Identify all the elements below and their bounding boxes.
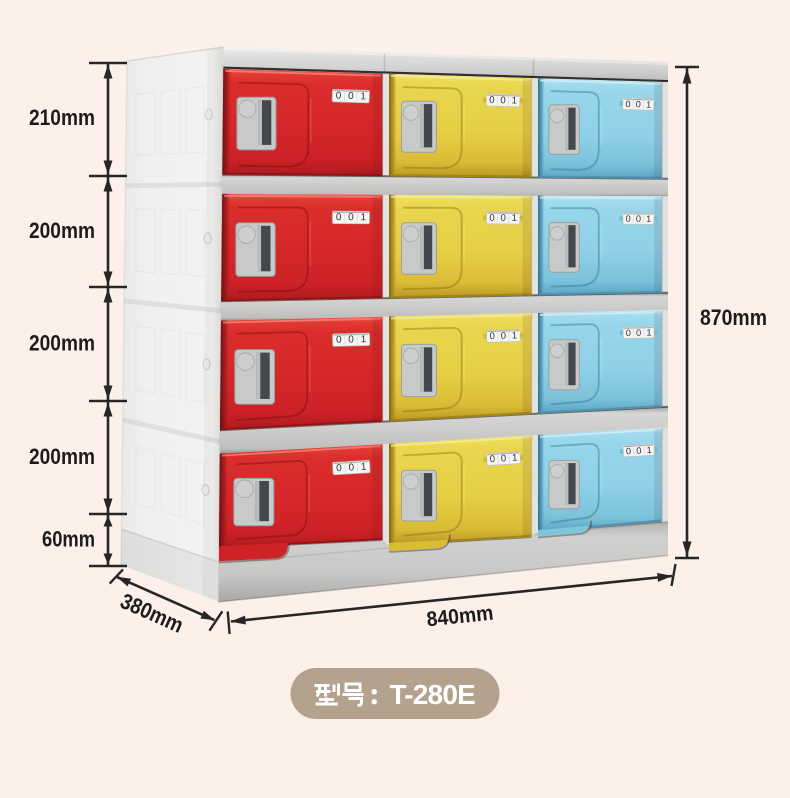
svg-text:0: 0 <box>626 214 631 224</box>
svg-text:0: 0 <box>489 454 495 465</box>
svg-text:1: 1 <box>361 462 368 473</box>
svg-text:0: 0 <box>489 213 494 224</box>
svg-text:T-280E: T-280E <box>390 679 476 710</box>
svg-text:1: 1 <box>361 334 367 345</box>
svg-text:1: 1 <box>646 214 651 224</box>
svg-text:210mm: 210mm <box>29 105 95 130</box>
svg-text:0: 0 <box>336 91 342 102</box>
svg-text:0: 0 <box>336 212 342 223</box>
svg-text:1: 1 <box>360 212 366 223</box>
svg-text:1: 1 <box>512 330 518 341</box>
svg-text:0: 0 <box>500 95 506 106</box>
svg-text:0: 0 <box>626 446 632 456</box>
svg-text:0: 0 <box>348 462 355 473</box>
svg-text:0: 0 <box>336 335 342 346</box>
svg-text:0: 0 <box>348 334 354 345</box>
svg-text:1: 1 <box>511 95 517 106</box>
svg-text:0: 0 <box>348 212 354 223</box>
svg-text:200mm: 200mm <box>29 218 95 243</box>
svg-text:0: 0 <box>489 331 495 342</box>
svg-text:870mm: 870mm <box>700 305 767 330</box>
svg-text:60mm: 60mm <box>42 527 95 552</box>
svg-text:1: 1 <box>360 91 366 102</box>
svg-text:0: 0 <box>489 95 495 106</box>
svg-text:200mm: 200mm <box>29 444 95 469</box>
svg-text:0: 0 <box>636 99 641 109</box>
svg-text:0: 0 <box>348 91 354 102</box>
svg-text:0: 0 <box>500 213 505 224</box>
svg-text:0: 0 <box>636 328 641 338</box>
svg-text:1: 1 <box>512 453 518 464</box>
svg-text:0: 0 <box>625 99 630 109</box>
svg-text:0: 0 <box>626 328 631 338</box>
svg-text:1: 1 <box>646 100 651 110</box>
svg-text:0: 0 <box>636 446 642 456</box>
svg-text:1: 1 <box>646 445 652 455</box>
svg-text:0: 0 <box>501 331 507 342</box>
svg-text:0: 0 <box>636 214 641 224</box>
svg-text:0: 0 <box>501 453 507 464</box>
svg-text:1: 1 <box>646 328 651 338</box>
svg-text:200mm: 200mm <box>29 331 95 356</box>
svg-text:1: 1 <box>512 213 517 224</box>
svg-text:0: 0 <box>336 463 343 474</box>
